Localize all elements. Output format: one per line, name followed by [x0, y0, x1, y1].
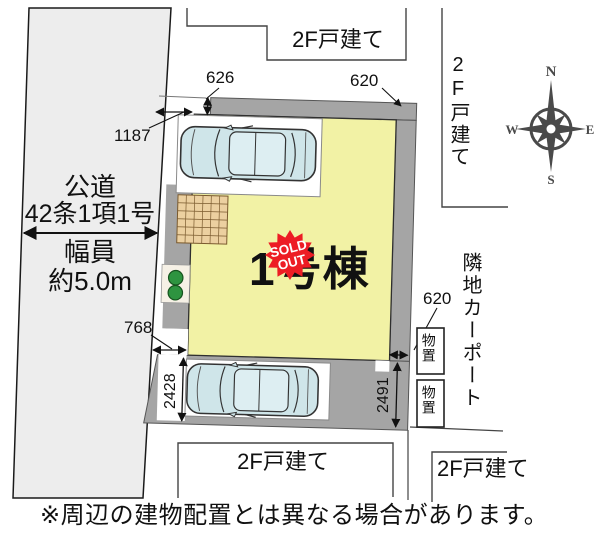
dim-label-2491: 2491 — [376, 377, 393, 413]
dim-label-620-north: 620 — [350, 72, 378, 90]
car-south — [186, 361, 318, 419]
compass-label-west: W — [506, 122, 519, 137]
caption-note: ※周辺の建物配置とは異なる場合があります。 — [40, 503, 548, 528]
bush-2 — [168, 285, 183, 300]
road-name-line1: 公道 — [15, 174, 165, 201]
southeast-corner-notch — [375, 360, 389, 371]
road-width-line2: 約5.0m — [15, 268, 165, 295]
dim-label-2428: 2428 — [163, 373, 180, 409]
compass-label-east: E — [586, 122, 595, 137]
storage-label-1: 物置 — [421, 333, 436, 363]
neighbor-label-bottom-left: 2F戸建て — [213, 450, 353, 473]
dim-arrow-620-east — [390, 355, 408, 356]
neighbor-label-right: 2F戸建て — [447, 54, 468, 168]
road-width-line1: 幅員 — [15, 239, 165, 266]
site-plan: N E S W 公道 42条1項1号 幅員 約5.0m 2F戸建て 2F戸建て … — [0, 0, 600, 544]
neighbor-label-top: 2F戸建て — [268, 28, 408, 51]
dim-label-620-east: 620 — [423, 290, 451, 308]
bush-1 — [168, 270, 183, 285]
sold-out-badge: SOLD OUT — [262, 227, 318, 283]
compass-label-south: S — [547, 172, 554, 187]
neighbor-label-bottom-right: 2F戸建て — [437, 457, 529, 480]
dim-label-626: 626 — [206, 69, 234, 87]
compass-rose: N E S W — [506, 64, 595, 187]
storage-label-2: 物置 — [421, 385, 436, 415]
compass-label-north: N — [546, 64, 557, 80]
road-name-line2: 42条1項1号 — [15, 201, 165, 227]
southwest-gap-notch — [154, 328, 189, 355]
carport-label: 隣地カーポート — [459, 252, 480, 410]
car-north — [180, 124, 317, 184]
dim-label-768: 768 — [124, 319, 152, 337]
dim-label-1187: 1187 — [114, 127, 151, 145]
compass-center-dot — [547, 125, 556, 134]
